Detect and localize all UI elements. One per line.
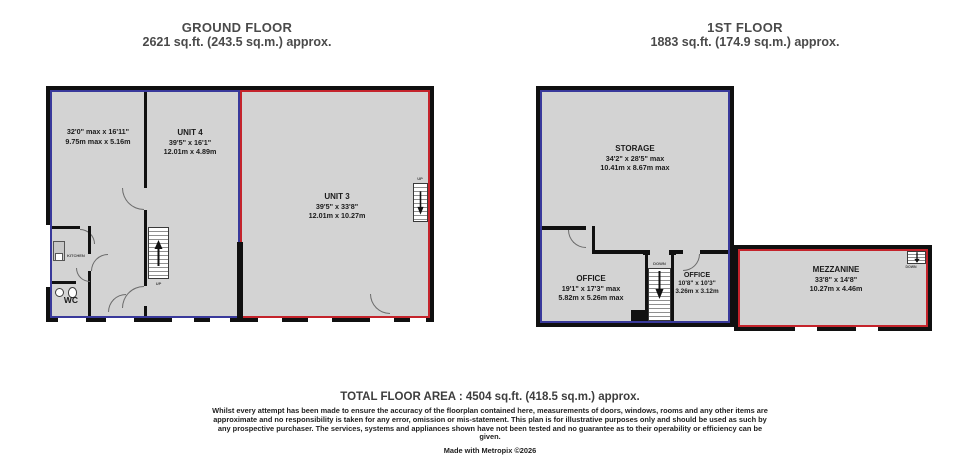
first-floor-main-plan: STORAGE 34'2" x 28'5" max 10.41m x 8.67m… bbox=[536, 86, 734, 327]
up-arrow-icon bbox=[154, 240, 163, 266]
room-name: OFFICE bbox=[545, 274, 637, 284]
window-opening bbox=[58, 318, 86, 322]
wall bbox=[88, 226, 91, 254]
ground-floor-title-text: GROUND FLOOR bbox=[117, 20, 357, 35]
wall bbox=[144, 306, 147, 316]
first-floor-title: 1ST FLOOR 1883 sq.ft. (174.9 sq.m.) appr… bbox=[625, 20, 865, 49]
room-name: UNIT 4 bbox=[144, 128, 236, 138]
wall bbox=[674, 250, 683, 254]
ground-red-unit: UNIT 3 39'5" x 33'8" 12.01m x 10.27m UP bbox=[240, 90, 430, 318]
room-name: MEZZANINE bbox=[766, 265, 906, 275]
ground-blue-unit: UP KITCHEN WC 32'0" max x 16'11" 9.75m m… bbox=[50, 90, 240, 318]
room-name: UNIT 3 bbox=[290, 192, 384, 202]
metropix-credit: Made with Metropix ©2026 bbox=[0, 446, 980, 455]
window-opening bbox=[46, 225, 50, 287]
window-opening bbox=[856, 327, 878, 331]
room-dims-imperial: 32'0" max x 16'11" bbox=[52, 127, 144, 137]
room-dims-metric: 12.01m x 10.27m bbox=[290, 211, 384, 221]
stairs-down-label: DOWN bbox=[642, 261, 677, 266]
room-dims-imperial: 39'5" x 16'1" bbox=[144, 138, 236, 148]
wall bbox=[52, 281, 76, 284]
unit3-staircase bbox=[413, 183, 428, 222]
first-floor-title-text: 1ST FLOOR bbox=[625, 20, 865, 35]
room-dims-metric: 5.82m x 5.26m max bbox=[545, 293, 637, 303]
mezzanine-staircase bbox=[907, 251, 926, 264]
void-block bbox=[631, 310, 648, 321]
door-arc bbox=[568, 230, 586, 248]
stairs-up-label: UP bbox=[406, 176, 434, 181]
room-name: OFFICE bbox=[664, 271, 730, 280]
room-dims-imperial: 33'8" x 14'8" bbox=[766, 275, 906, 285]
mezzanine-label: MEZZANINE 33'8" x 14'8" 10.27m x 4.46m bbox=[766, 265, 906, 294]
window-opening bbox=[795, 327, 817, 331]
kitchen-label: KITCHEN bbox=[67, 253, 95, 258]
floorplan-page: { "colors": { "blue": "#39399b", "red": … bbox=[0, 0, 980, 457]
door-arc bbox=[76, 268, 90, 282]
ground-floor-area-text: 2621 sq.ft. (243.5 sq.m.) approx. bbox=[117, 35, 357, 49]
door-opening bbox=[106, 318, 134, 322]
kitchen-sink-icon bbox=[55, 253, 63, 261]
storage-label: STORAGE 34'2" x 28'5" max 10.41m x 8.67m… bbox=[565, 144, 705, 173]
door-arc bbox=[108, 294, 126, 312]
room-dims-imperial: 39'5" x 33'8" bbox=[290, 202, 384, 212]
stairs-up-label: UP bbox=[146, 281, 171, 286]
total-floor-area: TOTAL FLOOR AREA : 4504 sq.ft. (418.5 sq… bbox=[0, 391, 980, 403]
room-dims-imperial: 10'8" x 10'3" bbox=[664, 280, 730, 289]
wc-label: WC bbox=[52, 296, 90, 306]
door-opening bbox=[370, 318, 394, 322]
room-dims-imperial: 19'1" x 17'3" max bbox=[545, 284, 637, 294]
wall bbox=[144, 210, 147, 286]
office-right-label: OFFICE 10'8" x 10'3" 3.26m x 3.12m bbox=[664, 271, 730, 297]
room-dims-metric: 3.26m x 3.12m bbox=[664, 288, 730, 297]
window-opening bbox=[308, 318, 332, 322]
wall bbox=[595, 250, 647, 254]
wall bbox=[52, 226, 80, 229]
left-room-label: 32'0" max x 16'11" 9.75m max x 5.16m bbox=[52, 127, 144, 146]
window-opening bbox=[410, 318, 426, 322]
ground-staircase bbox=[148, 227, 169, 279]
door-arc bbox=[370, 294, 390, 314]
room-dims-metric: 10.27m x 4.46m bbox=[766, 284, 906, 294]
office-left-label: OFFICE 19'1" x 17'3" max 5.82m x 5.26m m… bbox=[545, 274, 637, 303]
ground-floor-title: GROUND FLOOR 2621 sq.ft. (243.5 sq.m.) a… bbox=[117, 20, 357, 49]
room-name: WC bbox=[52, 296, 90, 306]
kitchen-unit-icon bbox=[53, 241, 65, 261]
party-wall bbox=[237, 242, 243, 318]
window-opening bbox=[258, 318, 282, 322]
door-arc bbox=[683, 254, 700, 271]
first-floor-mezzanine-plan: MEZZANINE 33'8" x 14'8" 10.27m x 4.46m D… bbox=[734, 245, 932, 331]
down-arrow-icon bbox=[655, 271, 664, 299]
first-floor-area-text: 1883 sq.ft. (174.9 sq.m.) approx. bbox=[625, 35, 865, 49]
down-arrow-icon bbox=[914, 252, 920, 263]
room-dims-metric: 10.41m x 8.67m max bbox=[565, 163, 705, 173]
door-arc bbox=[122, 188, 144, 210]
disclaimer-text: Whilst every attempt has been made to en… bbox=[208, 407, 773, 442]
first-red-unit: MEZZANINE 33'8" x 14'8" 10.27m x 4.46m D… bbox=[738, 249, 928, 327]
room-dims-metric: 12.01m x 4.89m bbox=[144, 147, 236, 157]
room-dims-metric: 9.75m max x 5.16m bbox=[52, 137, 144, 147]
down-arrow-icon bbox=[417, 188, 424, 218]
wall bbox=[700, 250, 728, 254]
window-opening bbox=[210, 318, 230, 322]
ground-floor-plan: UP KITCHEN WC 32'0" max x 16'11" 9.75m m… bbox=[46, 86, 434, 322]
room-dims-imperial: 34'2" x 28'5" max bbox=[565, 154, 705, 164]
first-blue-unit: STORAGE 34'2" x 28'5" max 10.41m x 8.67m… bbox=[540, 90, 730, 323]
room-name: STORAGE bbox=[565, 144, 705, 154]
unit3-label: UNIT 3 39'5" x 33'8" 12.01m x 10.27m bbox=[290, 192, 384, 221]
stairs-down-label: DOWN bbox=[896, 265, 926, 270]
unit4-label: UNIT 4 39'5" x 16'1" 12.01m x 4.89m bbox=[144, 128, 236, 157]
window-opening bbox=[172, 318, 194, 322]
